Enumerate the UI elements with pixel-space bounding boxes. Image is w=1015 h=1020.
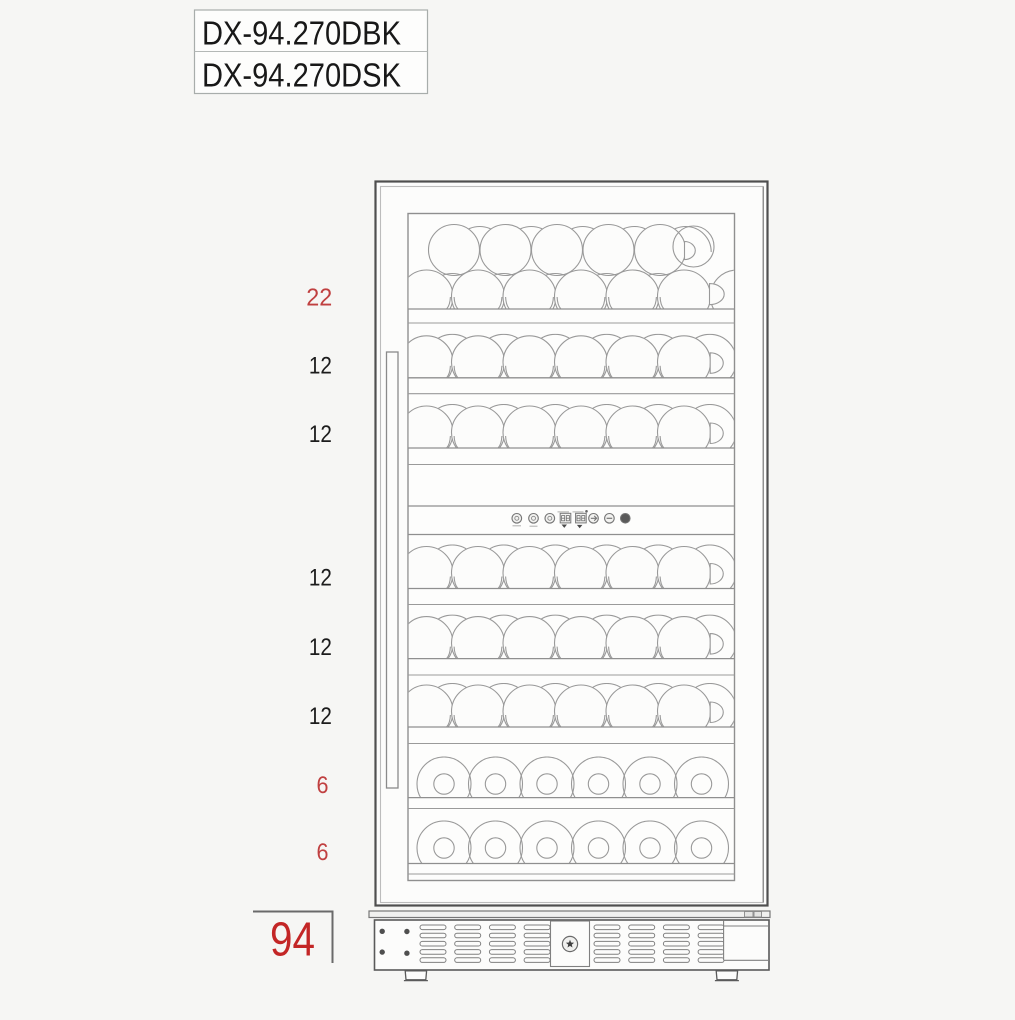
svg-text:12: 12 (309, 703, 332, 730)
svg-text:12: 12 (309, 565, 332, 592)
svg-text:12: 12 (309, 634, 332, 661)
svg-text:12: 12 (309, 352, 332, 379)
svg-text:12: 12 (309, 421, 332, 448)
svg-text:22: 22 (306, 285, 332, 312)
svg-text:DX-94.270DSK: DX-94.270DSK (202, 58, 401, 95)
svg-text:6: 6 (317, 772, 329, 799)
svg-text:94: 94 (270, 913, 315, 966)
svg-text:6: 6 (317, 839, 329, 866)
svg-text:DX-94.270DBK: DX-94.270DBK (202, 16, 401, 53)
